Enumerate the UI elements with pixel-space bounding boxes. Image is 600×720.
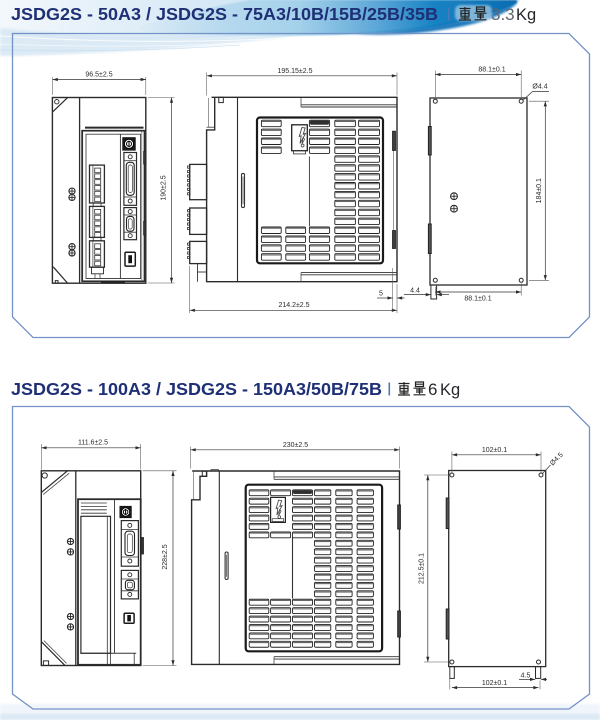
svg-text:88.1±0.1: 88.1±0.1 [464, 296, 491, 303]
svg-text:JSDG2S - 50A3 / JSDG2S - 75A3/: JSDG2S - 50A3 / JSDG2S - 75A3/10B/15B/25… [11, 4, 438, 24]
svg-text:230±2.5: 230±2.5 [283, 442, 308, 449]
svg-text:88.1±0.1: 88.1±0.1 [478, 67, 505, 74]
svg-text:190±2.5: 190±2.5 [161, 175, 168, 200]
svg-text:Kg: Kg [440, 381, 460, 399]
svg-text:Kg: Kg [516, 6, 536, 24]
svg-text:102±0.1: 102±0.1 [482, 680, 507, 687]
svg-text:4.4: 4.4 [410, 288, 420, 295]
svg-text:JSDG2S - 100A3 / JSDG2S - 150A: JSDG2S - 100A3 / JSDG2S - 150A3/50B/75B [11, 379, 382, 399]
svg-text:214.2±2.5: 214.2±2.5 [278, 302, 309, 309]
svg-text:184±0.1: 184±0.1 [536, 178, 543, 203]
svg-text:228±2.5: 228±2.5 [162, 544, 169, 569]
svg-text:102±0.1: 102±0.1 [482, 447, 507, 454]
svg-text:96.5±2.5: 96.5±2.5 [85, 72, 112, 79]
svg-text:Ø4.4: Ø4.4 [532, 84, 547, 91]
svg-text:111.6±2.5: 111.6±2.5 [78, 439, 108, 446]
svg-text:3.3: 3.3 [491, 5, 515, 24]
svg-text:4.5: 4.5 [521, 673, 531, 680]
svg-text:5: 5 [379, 290, 383, 297]
svg-text:195.15±2.5: 195.15±2.5 [278, 68, 313, 75]
svg-text:212.5±0.1: 212.5±0.1 [419, 553, 426, 584]
svg-text:6: 6 [428, 380, 437, 399]
svg-text:Ø4.5: Ø4.5 [549, 452, 565, 468]
